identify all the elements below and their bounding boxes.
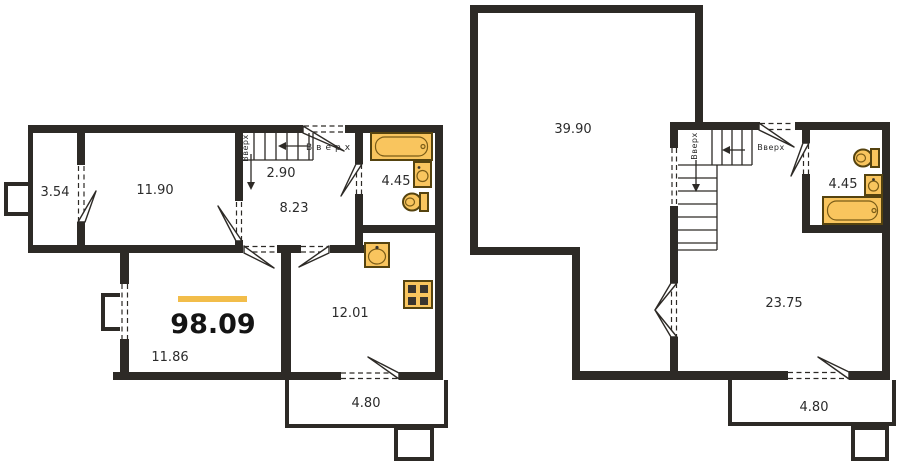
bedroom-door-leaf bbox=[218, 206, 242, 241]
sink-tap bbox=[872, 178, 875, 181]
wall-segment bbox=[355, 133, 363, 164]
kitchen-door-leaf bbox=[299, 246, 329, 267]
wall-segment bbox=[670, 337, 678, 372]
stair-arrow-head bbox=[247, 182, 255, 190]
bathroom-door-leaf bbox=[341, 164, 362, 196]
double-door-leaf-upper bbox=[655, 283, 677, 310]
wall-segment bbox=[470, 5, 703, 13]
wall-segment bbox=[355, 194, 363, 253]
room-area-label: 4.45 bbox=[382, 174, 411, 189]
floorplan-canvas: 3.54 11.90 2.90 8.23 4.45 12.01 11.86 4.… bbox=[0, 0, 900, 468]
balcony-annex-outline bbox=[396, 428, 432, 459]
floor1-fixtures bbox=[365, 133, 432, 308]
wall-segment bbox=[399, 372, 443, 380]
stairs-up-label: Вверх bbox=[241, 134, 250, 161]
entry-up-label: Вверх bbox=[306, 143, 354, 153]
wall-segment bbox=[28, 125, 33, 251]
double-door-opening bbox=[672, 283, 677, 337]
wall-segment bbox=[849, 371, 890, 380]
loggia-door-leaf bbox=[78, 191, 96, 222]
wall-segment bbox=[670, 122, 760, 130]
stove-burner bbox=[408, 285, 416, 293]
wall-segment bbox=[281, 253, 291, 372]
room-area-label: 4.45 bbox=[829, 177, 858, 192]
wall-segment bbox=[28, 245, 243, 253]
living-window bbox=[122, 284, 128, 339]
total-area-label: 98.09 bbox=[170, 309, 255, 340]
stair-arrow-head bbox=[278, 142, 286, 150]
floor2-door-openings bbox=[672, 124, 849, 379]
wall-segment bbox=[802, 130, 810, 143]
wall-segment bbox=[695, 5, 703, 130]
room-area-label: 8.23 bbox=[280, 201, 309, 216]
room-area-label: 2.90 bbox=[267, 166, 296, 181]
room-area-label: 11.90 bbox=[136, 183, 173, 198]
window-niche-outline bbox=[103, 295, 120, 329]
kitchen-sink-tap bbox=[375, 246, 378, 249]
wall-segment bbox=[355, 225, 443, 233]
stove-burner bbox=[420, 297, 428, 305]
loggia-niche-outline bbox=[6, 184, 28, 214]
balcony-annex-outline bbox=[853, 428, 887, 459]
room-area-label: 39.90 bbox=[554, 122, 591, 137]
wall-segment bbox=[795, 122, 890, 130]
wall-segment bbox=[470, 247, 580, 255]
wall-segment bbox=[802, 174, 810, 233]
toilet-tank bbox=[871, 149, 879, 167]
wall-segment bbox=[345, 125, 443, 133]
wall-segment bbox=[802, 225, 890, 233]
sink-tap bbox=[418, 166, 421, 169]
stair-treads-lower bbox=[678, 165, 717, 250]
stairs-up-label: Вверх bbox=[690, 132, 699, 159]
floorplan-svg: 3.54 11.90 2.90 8.23 4.45 12.01 11.86 4.… bbox=[0, 0, 900, 468]
floor1-plan: 3.54 11.90 2.90 8.23 4.45 12.01 11.86 4.… bbox=[6, 125, 446, 459]
balcony-door-opening bbox=[788, 373, 848, 379]
wall-segment bbox=[113, 372, 341, 380]
room-area-label: 12.01 bbox=[331, 306, 368, 321]
sink bbox=[865, 175, 882, 195]
room-area-label: 3.54 bbox=[41, 185, 70, 200]
wall-segment bbox=[670, 130, 678, 148]
wall-segment bbox=[77, 133, 85, 165]
room-area-label: 23.75 bbox=[765, 296, 802, 311]
wall-segment bbox=[120, 253, 129, 284]
wall-segment bbox=[572, 247, 580, 378]
floor2-walls bbox=[470, 5, 890, 380]
wall-segment bbox=[470, 5, 478, 255]
total-area-accent-bar bbox=[178, 296, 247, 302]
room-area-label: 4.80 bbox=[800, 400, 829, 415]
wall-segment bbox=[435, 125, 443, 380]
balcony-door-leaf bbox=[368, 357, 399, 379]
stove-burner bbox=[420, 285, 428, 293]
wall-segment bbox=[77, 222, 85, 245]
bathroom-door-leaf bbox=[791, 143, 809, 176]
toilet-tank bbox=[420, 193, 428, 211]
double-door-leaf-lower bbox=[655, 310, 677, 337]
wall-segment bbox=[882, 122, 890, 380]
wall-segment bbox=[235, 240, 243, 253]
balcony-door-opening bbox=[341, 373, 398, 379]
room-area-label: 11.86 bbox=[151, 350, 188, 365]
stairwell-window bbox=[672, 148, 677, 206]
stove-burner bbox=[408, 297, 416, 305]
floor1-stairs bbox=[243, 133, 313, 190]
stair-arrow-head bbox=[722, 146, 730, 154]
wall-segment bbox=[277, 245, 301, 253]
room-area-label: 4.80 bbox=[352, 396, 381, 411]
sink bbox=[414, 162, 431, 187]
wall-segment bbox=[28, 125, 303, 133]
stair-door-up-label: Вверх bbox=[757, 143, 784, 152]
living-door-leaf bbox=[244, 246, 274, 268]
balcony-door-leaf bbox=[818, 357, 849, 379]
floor2-plan: 39.90 4.45 23.75 4.80 Вверх Вверх bbox=[470, 5, 894, 459]
wall-segment bbox=[670, 206, 678, 283]
wall-segment bbox=[572, 371, 788, 380]
